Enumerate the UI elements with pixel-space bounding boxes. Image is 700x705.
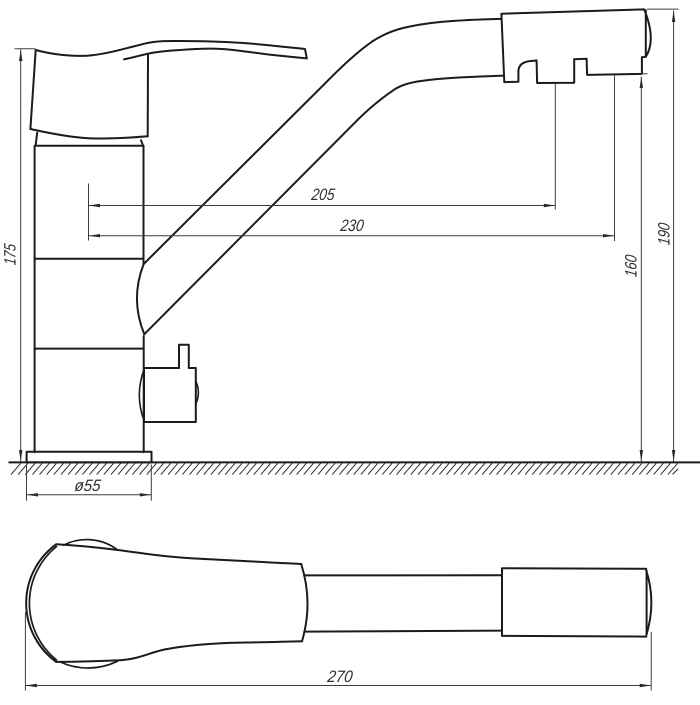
svg-text:270: 270 xyxy=(326,667,355,686)
svg-text:230: 230 xyxy=(339,216,366,235)
svg-text:205: 205 xyxy=(310,185,337,204)
svg-text:ø55: ø55 xyxy=(74,476,103,495)
svg-text:160: 160 xyxy=(622,253,641,278)
svg-text:190: 190 xyxy=(655,221,674,246)
svg-text:175: 175 xyxy=(1,242,20,266)
